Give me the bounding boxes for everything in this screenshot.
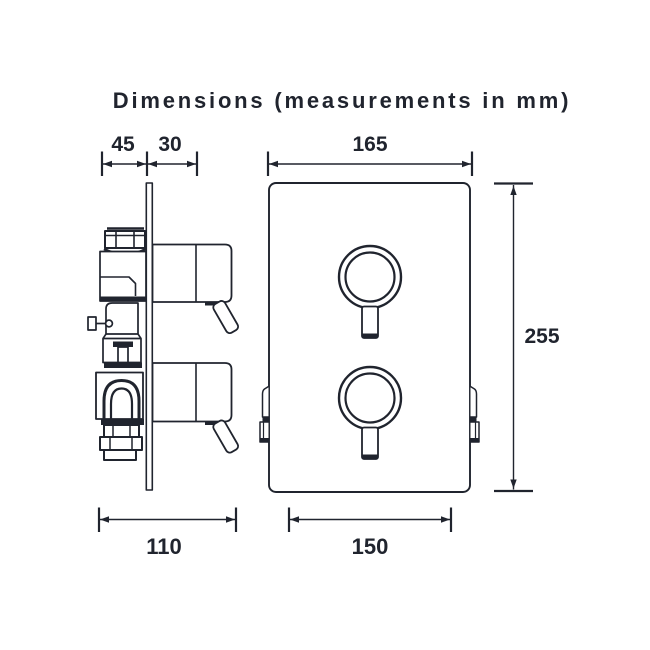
- hex-nut: [100, 437, 142, 450]
- bleed-screw: [88, 317, 96, 330]
- bottom-outlet-fitting: [100, 425, 142, 460]
- valve-neck: [88, 303, 138, 334]
- arrow-right-icon: [187, 161, 196, 167]
- right-mounting-tab: [471, 387, 480, 443]
- valve-body-side: [88, 229, 146, 461]
- arrow-left-icon: [100, 516, 109, 522]
- diagram-title: Dimensions (measurements in mm): [113, 88, 571, 113]
- lower-housing: [96, 373, 144, 426]
- side-overall-dimension: 110: [99, 508, 236, 560]
- front-width-dimension: 165: [268, 133, 472, 176]
- dim-label-255: 255: [524, 325, 559, 348]
- side-depth-dimension: 45 30: [102, 133, 197, 176]
- cartridge-block: [103, 334, 142, 368]
- front-view: 165: [260, 133, 560, 559]
- side-upper-lever: [212, 300, 240, 335]
- arrow-right-icon: [137, 161, 146, 167]
- arrow-left-icon: [290, 516, 299, 522]
- arrow-left-icon: [148, 161, 157, 167]
- left-mounting-tab: [260, 387, 269, 443]
- wall-plate-side: [146, 183, 152, 490]
- front-bottom-dimension: 150: [289, 508, 451, 560]
- side-lower-lever: [212, 419, 240, 454]
- arrow-right-icon: [462, 161, 471, 167]
- dim-label-150: 150: [352, 534, 389, 559]
- upper-dial-lever: [362, 307, 378, 339]
- hex-nut: [104, 425, 139, 437]
- side-lower-knob: [153, 363, 240, 454]
- dimension-diagram-page: Dimensions (measurements in mm) 45 30: [0, 0, 650, 650]
- arrow-down-icon: [510, 480, 516, 489]
- arrow-right-icon: [441, 516, 450, 522]
- dim-label-30: 30: [158, 133, 181, 156]
- side-view: 45 30: [88, 133, 240, 559]
- dim-label-110: 110: [146, 534, 182, 559]
- screw-head-icon: [106, 320, 113, 327]
- arrow-left-icon: [103, 161, 112, 167]
- dim-label-45: 45: [111, 133, 135, 156]
- side-upper-knob: [153, 245, 240, 335]
- front-height-dimension: 255: [494, 184, 560, 492]
- arrow-right-icon: [226, 516, 235, 522]
- arrow-left-icon: [269, 161, 278, 167]
- technical-drawing: Dimensions (measurements in mm) 45 30: [0, 0, 650, 650]
- dim-label-165: 165: [352, 133, 387, 156]
- lower-dial-lever: [362, 428, 378, 460]
- arrow-up-icon: [510, 186, 516, 195]
- upper-valve-block: [100, 252, 146, 302]
- hex-nut: [105, 231, 145, 248]
